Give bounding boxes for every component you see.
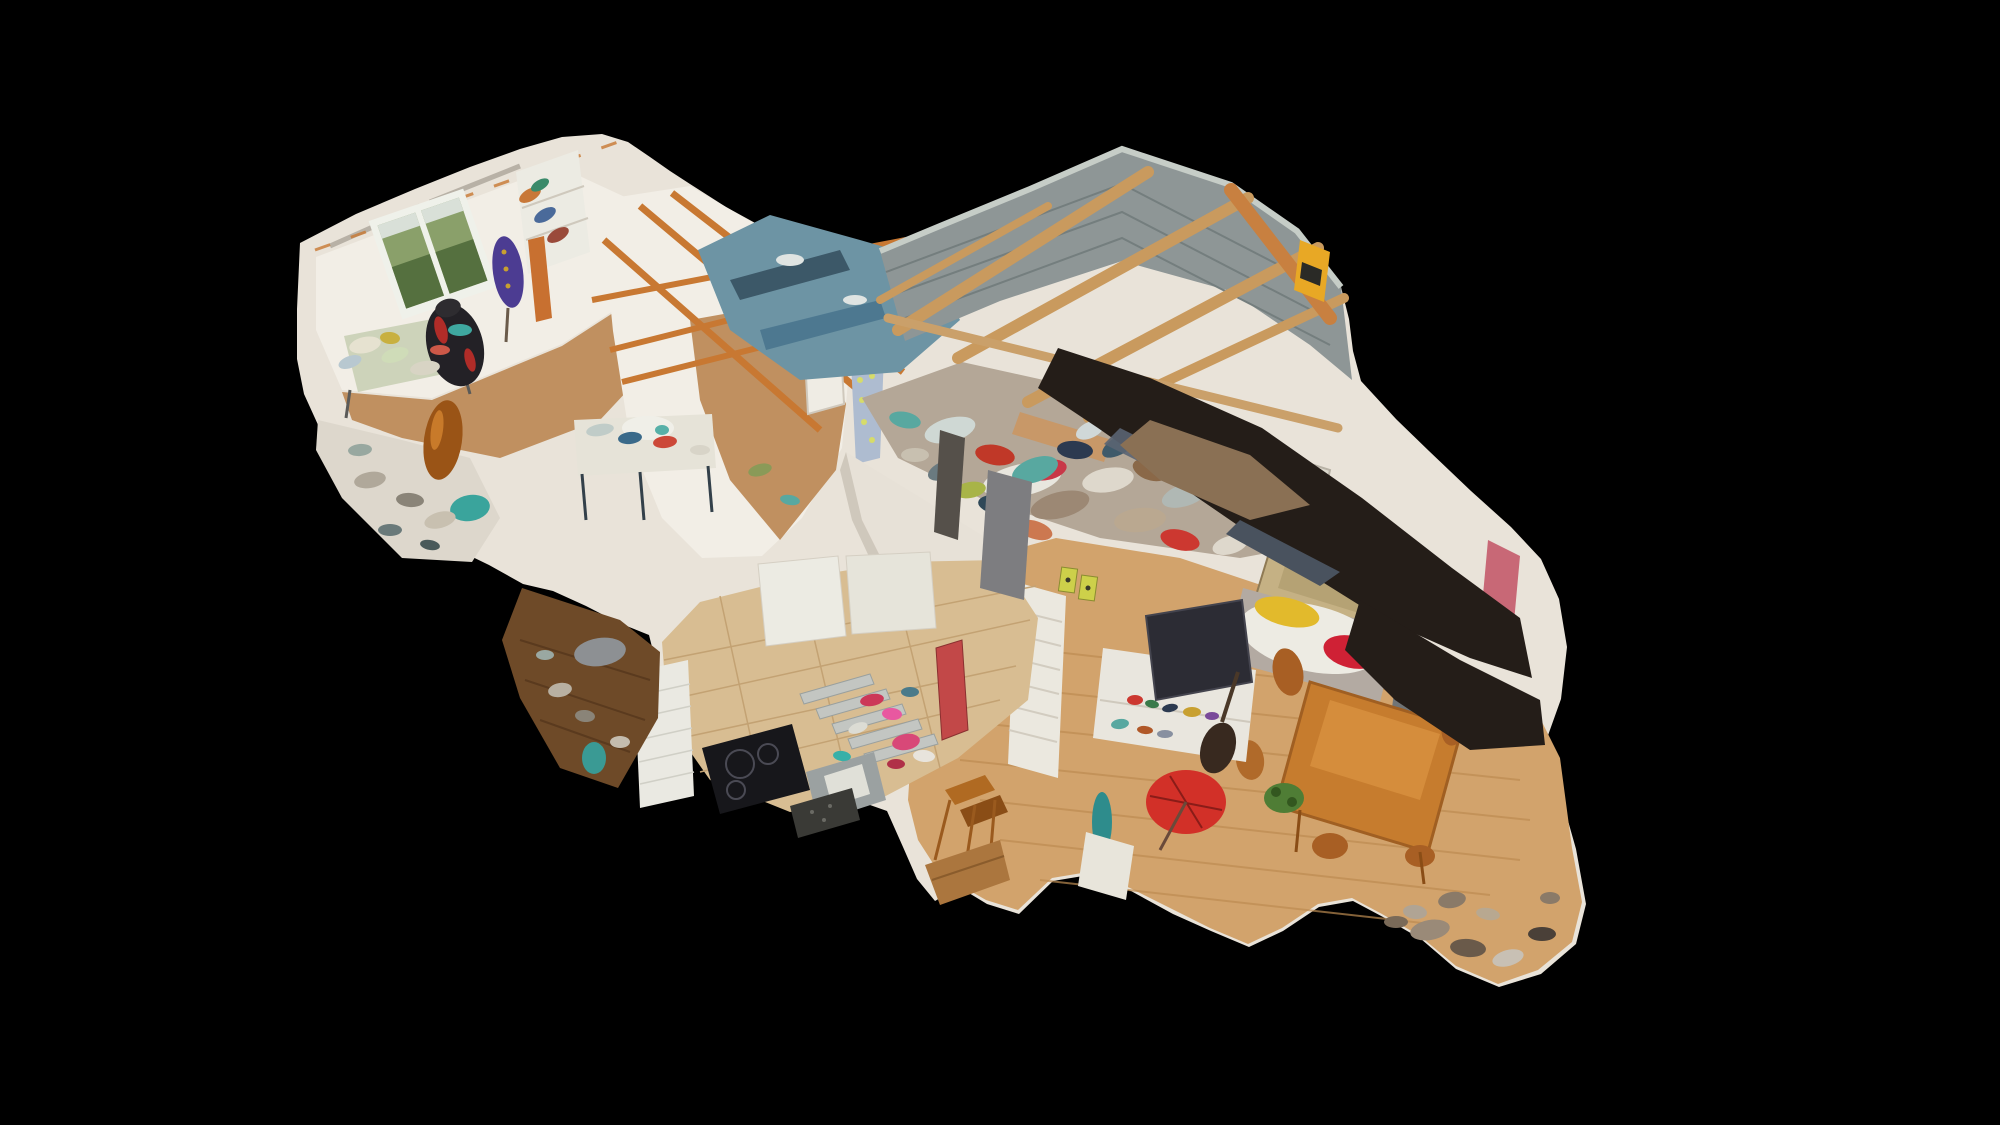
tv-screen <box>1146 600 1252 700</box>
clutter-item <box>430 345 450 355</box>
plant-leaf <box>1287 797 1297 807</box>
clutter-item <box>690 445 710 455</box>
mat-dot <box>810 810 814 814</box>
dining-chair <box>1312 833 1348 859</box>
clutter-item <box>901 687 919 697</box>
clutter-item <box>1157 730 1173 738</box>
snug-teal-item <box>582 742 606 774</box>
red-door <box>936 640 968 740</box>
board-dot <box>861 419 867 425</box>
dollhouse-model[interactable] <box>0 0 2000 1125</box>
tarp-shard <box>776 254 804 266</box>
kitchen-cabinet <box>846 552 936 634</box>
clutter-item <box>610 736 630 748</box>
kitchen-cabinet <box>758 556 846 646</box>
mannequin-button <box>504 267 509 272</box>
mannequin-stand <box>506 308 508 342</box>
board-dot <box>869 437 875 443</box>
potted-plant <box>1264 783 1304 813</box>
plant-leaf <box>1271 787 1281 797</box>
clutter-item <box>901 448 929 462</box>
clutter-item <box>1384 916 1408 928</box>
box-dial <box>1066 578 1071 583</box>
dollhouse-viewport[interactable] <box>0 0 2000 1125</box>
clutter-item <box>1205 712 1219 720</box>
mat-dot <box>822 818 826 822</box>
clutter-item <box>1183 707 1201 717</box>
plant-foliage <box>1264 783 1304 813</box>
tarp-shard <box>843 295 867 305</box>
clutter-item <box>536 650 554 660</box>
clutter-item <box>448 324 472 336</box>
clutter-item <box>887 759 905 769</box>
sewing-machine-accent <box>655 425 669 435</box>
mat-dot <box>828 804 832 808</box>
mannequin-button <box>506 284 511 289</box>
clutter-item <box>1127 695 1143 705</box>
mannequin-button <box>502 250 507 255</box>
clutter-item <box>1528 927 1556 941</box>
box-dial <box>1086 586 1091 591</box>
gray-column-artifact <box>980 470 1032 600</box>
board-dot <box>857 377 863 383</box>
clutter-item <box>378 524 402 536</box>
clutter-item <box>1540 892 1560 904</box>
